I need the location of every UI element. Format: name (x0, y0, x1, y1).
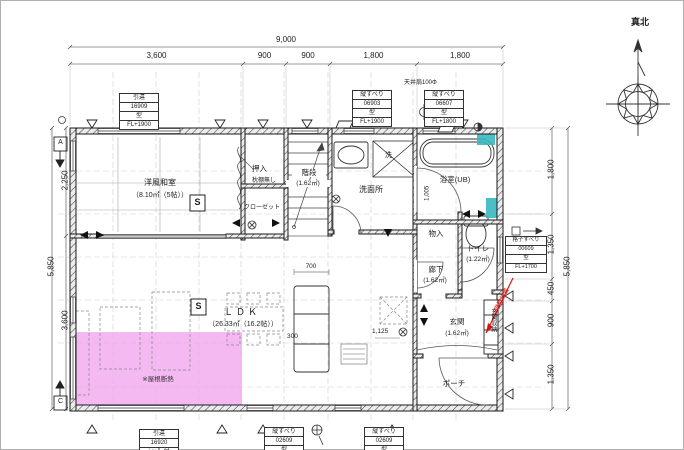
window-tag-7: 縦すべり02609 型 (364, 427, 404, 450)
room-label-senmenjo: 洗面所 (346, 186, 396, 195)
compass-north-label: 真北 (620, 18, 660, 28)
note-ceiling-fan: 天井扇100Φ (404, 80, 437, 87)
dim-top-total: 9,000 (236, 36, 336, 45)
small-note-box (341, 344, 367, 364)
compass-rose (606, 40, 670, 136)
dim-top-seg-4: 1,800 (330, 52, 417, 61)
room-label-kaidan: 階段 (292, 169, 326, 177)
room-label-yokushitsu: 浴室(UB) (425, 176, 485, 184)
dim-right-seg-4: 900 (548, 292, 557, 348)
note-laundry-mark: 洗 (385, 152, 392, 160)
dim-kitchen-700: 700 (296, 263, 326, 270)
dim-left-total: 5,850 (48, 238, 57, 294)
dim-top-seg-5: 1,800 (417, 52, 503, 61)
stairs (284, 142, 328, 236)
cyan-highlight-bath-door (486, 198, 497, 218)
dim-top-seg-3: 900 (286, 52, 330, 61)
room-area-ldk: （26.33㎡（16.2帖）） (183, 321, 303, 329)
window-tag-5: 引違16920 ｼｬｯﾀｰ付 (139, 429, 179, 450)
note-roof-insulation: ※屋根断熱 (128, 376, 188, 383)
room-label-ldk: ＬＤＫ (210, 308, 274, 318)
window-tag-3: 縦すべり06607 型FL+1800 (424, 90, 464, 127)
window-tag-6: 縦すべり02609 型 (264, 427, 304, 450)
window-tag-1: 引違16909 型FL+1900 (119, 93, 159, 130)
room-label-closet: クローゼット (236, 205, 288, 212)
washbasin (334, 142, 368, 168)
section-marker-a: A (54, 139, 67, 147)
room-label-genkan: 玄関 (440, 318, 474, 326)
section-marker-c: C (54, 398, 67, 406)
floor-plan-canvas: 9,000 3,600 900 900 1,800 1,800 2,250 3,… (0, 0, 684, 450)
dim-right-seg-5: 1,350 (548, 346, 557, 402)
dim-genkan-1125: 1,125 (372, 328, 388, 335)
room-area-genkan: (1.62㎡) (433, 330, 481, 337)
room-area-toilet: (1.22㎡) (455, 256, 501, 263)
room-area-rouka: (1.62㎡) (412, 277, 458, 284)
floor-plan-drawing (0, 0, 684, 450)
note-makuradana: 枕棚無し (240, 178, 288, 185)
room-label-porch: ポーチ (436, 380, 472, 388)
room-label-toilet: トイレ (458, 245, 498, 253)
dim-right-total: 5,850 (564, 238, 573, 294)
laundry-pan (373, 141, 415, 177)
dim-top-seg-1: 3,600 (70, 52, 243, 61)
dim-left-seg-2: 3,600 (62, 292, 71, 348)
dim-top-seg-2: 900 (243, 52, 286, 61)
room-area-kaidan: (1.62㎡) (286, 180, 330, 187)
room-label-monoire: 物入 (420, 230, 452, 238)
window-tag-2: 縦すべり06903 型FL+1900 (352, 90, 392, 127)
smoke-detector-washitsu: S (190, 198, 205, 208)
window-tag-4: 格子すべり00609 型FL+1700 (505, 236, 547, 273)
smoke-detector-ldk: S (191, 302, 206, 312)
dim-bath-1005: 1,005 (425, 179, 432, 207)
roof-insulation-highlight (76, 332, 242, 405)
room-label-oshiire: 押入 (252, 165, 267, 173)
room-label-rouka: 廊下 (420, 266, 452, 274)
dim-left-seg-1: 2,250 (62, 152, 71, 208)
room-label-washitsu: 洋風和室 (120, 179, 200, 188)
dim-counter-300: 300 (287, 333, 298, 340)
dim-right-seg-1: 1,800 (548, 141, 557, 197)
